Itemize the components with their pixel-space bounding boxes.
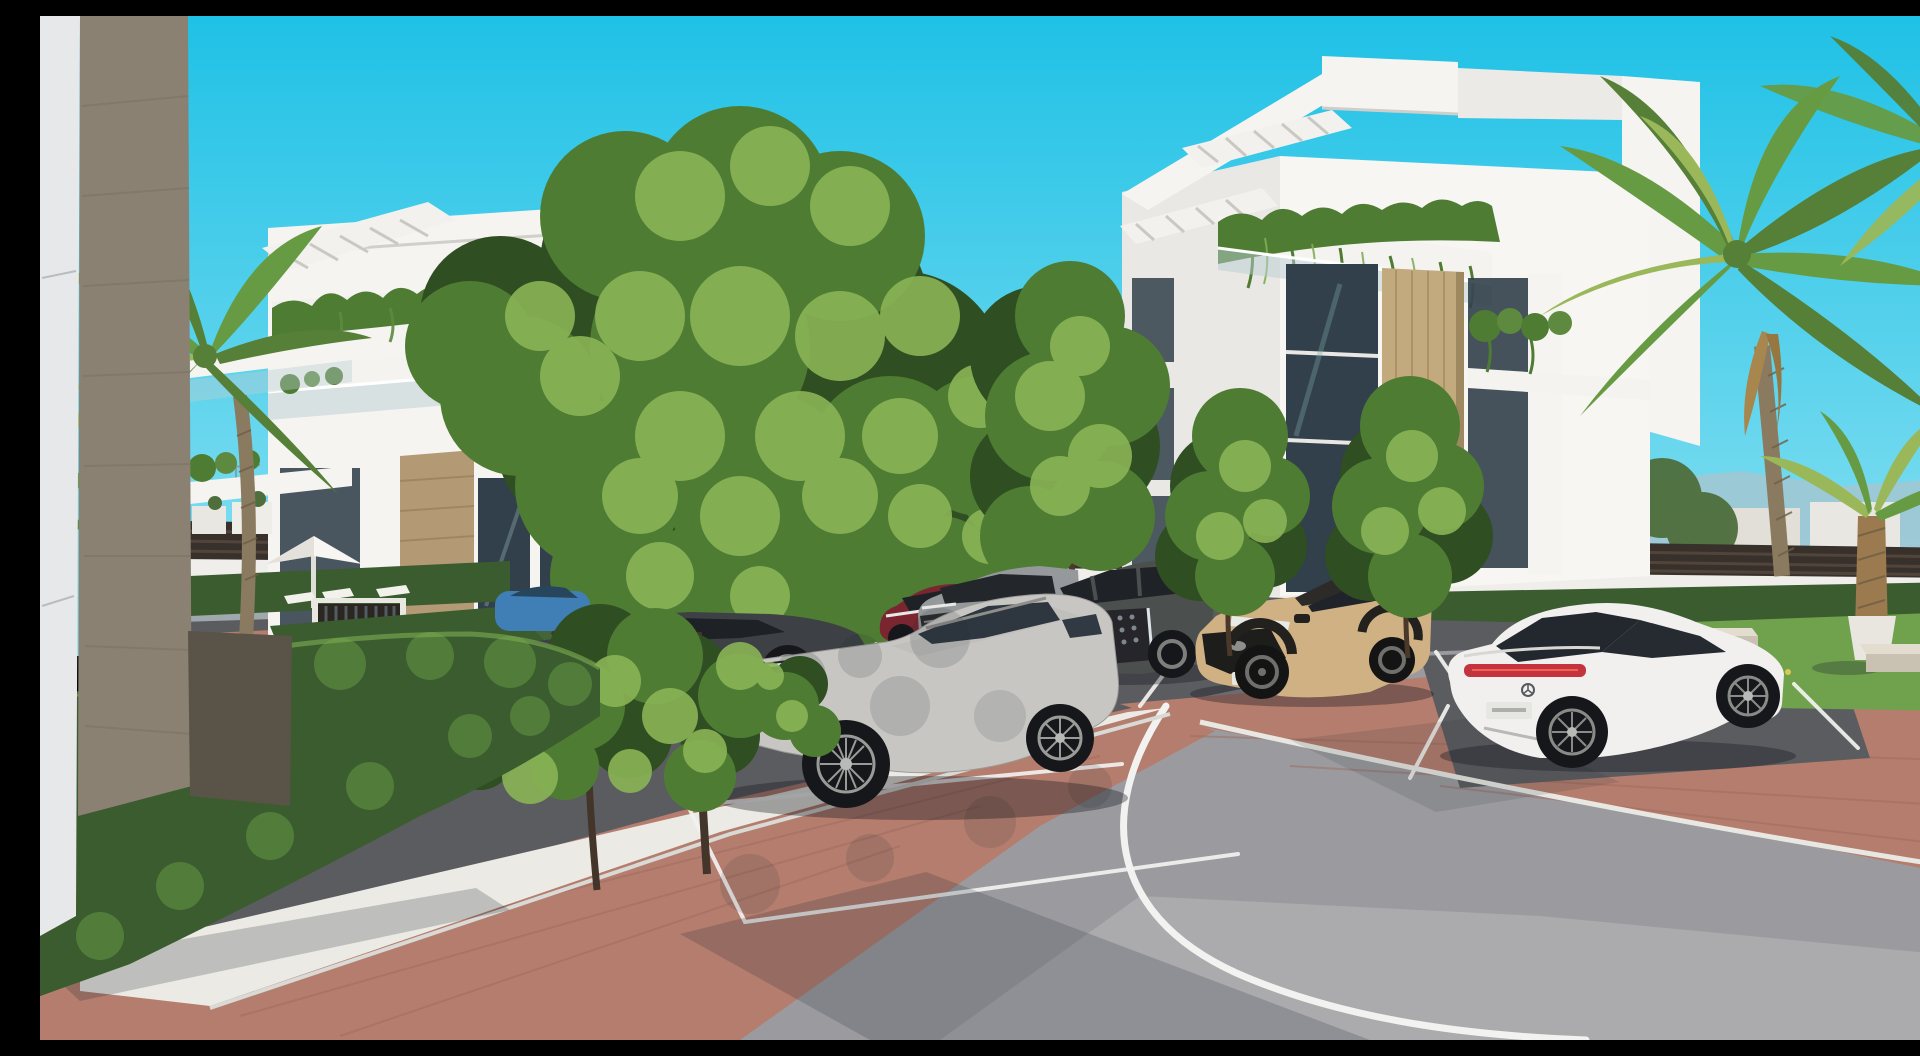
wheel — [1716, 664, 1780, 728]
wheel — [1026, 704, 1094, 772]
shaded-wall-face — [188, 631, 292, 806]
wheel — [1235, 645, 1289, 699]
architectural-render: Photorealistic 3D architectural renderin… — [40, 16, 1920, 1040]
mirror — [1294, 614, 1310, 623]
wheel — [1536, 696, 1608, 768]
wheel — [1148, 630, 1196, 678]
